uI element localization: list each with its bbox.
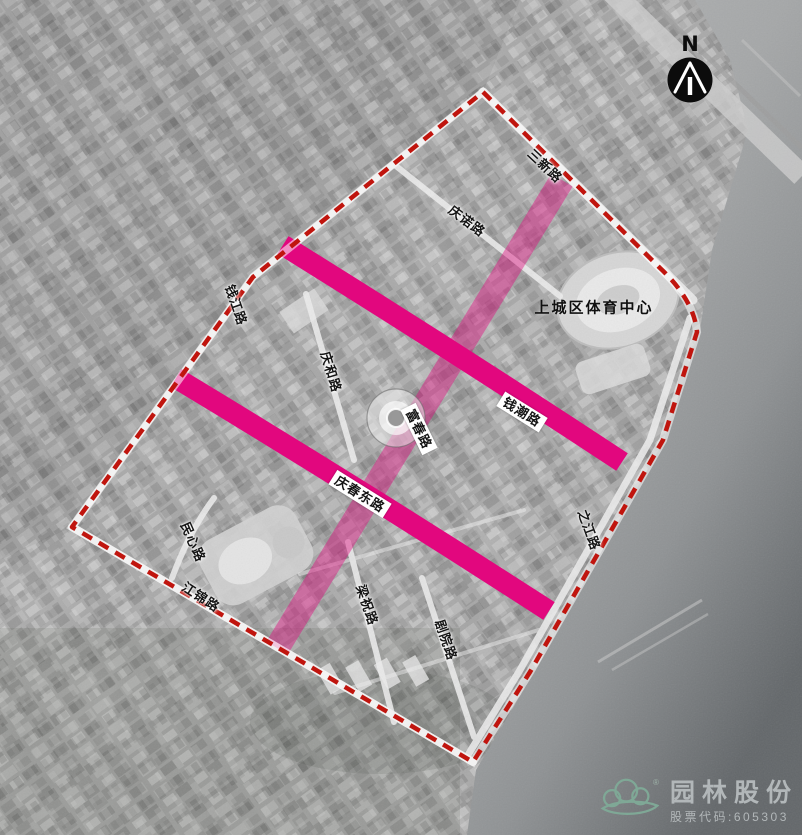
logo-company-name: 园林股份 [670, 780, 798, 806]
logo-stock-code: 股票代码:605303 [670, 808, 789, 825]
north-arrow: N [664, 34, 716, 109]
company-logo: ® 园林股份 股票代码:605303 [597, 776, 798, 829]
registered-mark: ® [653, 778, 659, 787]
north-letter: N [664, 34, 716, 55]
planning-map: 三新路 庆诺路 钱江路 庆和路 富春路 钱潮路 庆春东路 之江路 民心路 江锦路… [0, 0, 802, 835]
poi-label-sports-center: 上城区体育中心 [534, 297, 653, 318]
satellite-basemap [0, 0, 802, 835]
north-arrow-icon [666, 56, 714, 104]
